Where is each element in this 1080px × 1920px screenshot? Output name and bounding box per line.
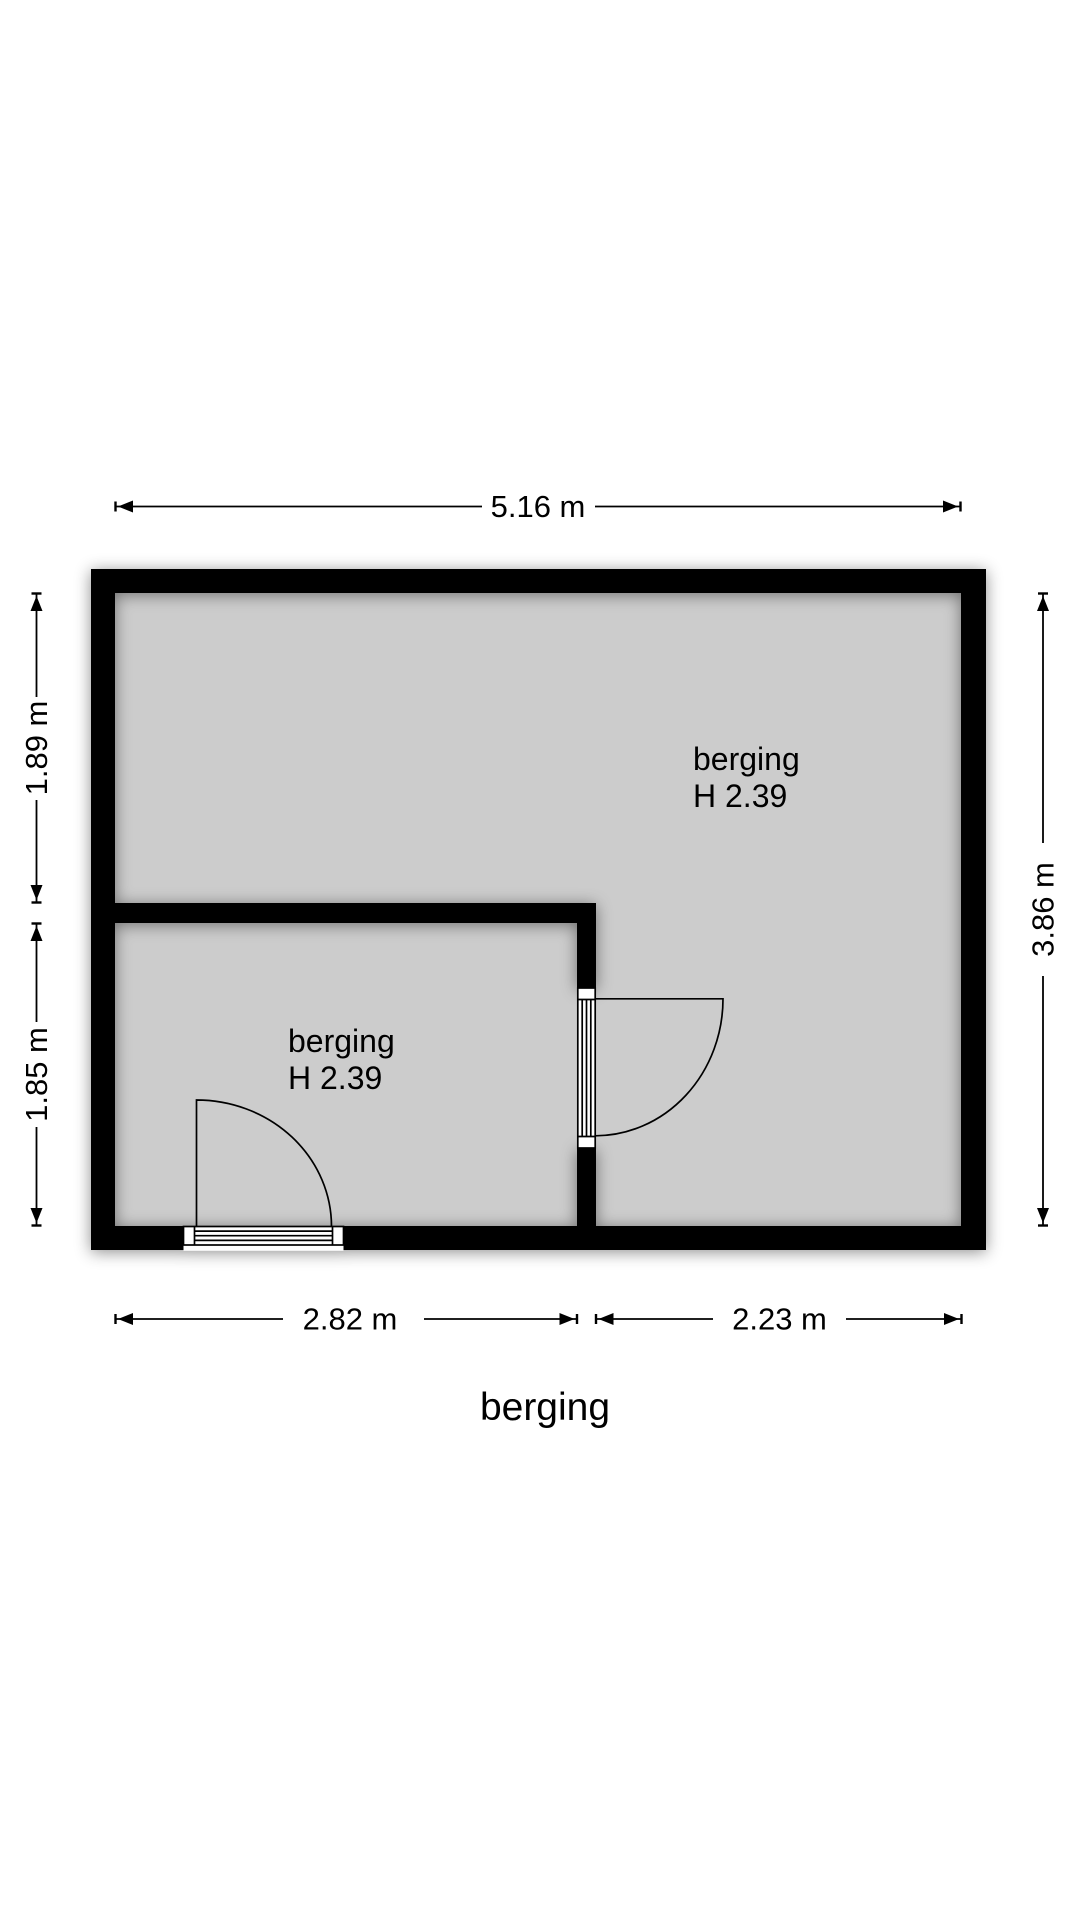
svg-text:1.85 m: 1.85 m: [19, 1027, 54, 1122]
svg-text:3.86 m: 3.86 m: [1026, 862, 1061, 957]
svg-text:2.23 m: 2.23 m: [732, 1302, 827, 1337]
svg-text:berging: berging: [693, 741, 800, 777]
svg-text:berging: berging: [480, 1386, 610, 1429]
svg-text:1.89 m: 1.89 m: [19, 701, 54, 796]
svg-text:H 2.39: H 2.39: [693, 778, 787, 814]
svg-text:5.16 m: 5.16 m: [491, 489, 586, 524]
svg-text:H 2.39: H 2.39: [288, 1060, 382, 1096]
svg-text:2.82 m: 2.82 m: [303, 1302, 398, 1337]
svg-text:berging: berging: [288, 1023, 395, 1059]
